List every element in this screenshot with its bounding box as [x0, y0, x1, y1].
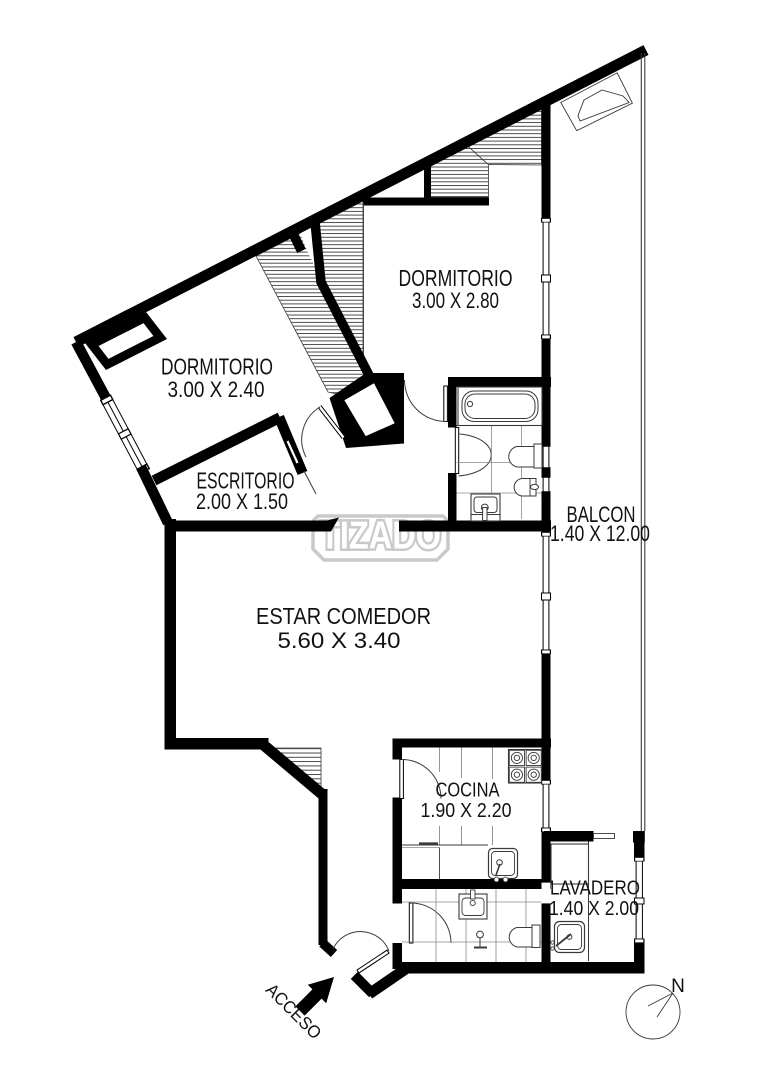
svg-text:ESTAR COMEDOR: ESTAR COMEDOR: [256, 603, 431, 629]
svg-text:1.90 X 2.20: 1.90 X 2.20: [421, 800, 512, 822]
svg-text:LAVADERO: LAVADERO: [550, 878, 640, 900]
svg-text:N: N: [671, 976, 685, 997]
svg-text:5.60 X 3.40: 5.60 X 3.40: [278, 628, 401, 653]
svg-text:2.00 X 1.50: 2.00 X 1.50: [196, 489, 288, 514]
svg-text:COCINA: COCINA: [436, 780, 501, 802]
svg-text:1.40 X 2.00: 1.40 X 2.00: [549, 898, 639, 920]
svg-text:1.40 X 12.00: 1.40 X 12.00: [550, 521, 650, 546]
svg-text:DORMITORIO: DORMITORIO: [161, 354, 273, 380]
svg-text:3.00 X 2.40: 3.00 X 2.40: [168, 377, 265, 402]
svg-text:3.00 X 2.80: 3.00 X 2.80: [412, 288, 499, 313]
